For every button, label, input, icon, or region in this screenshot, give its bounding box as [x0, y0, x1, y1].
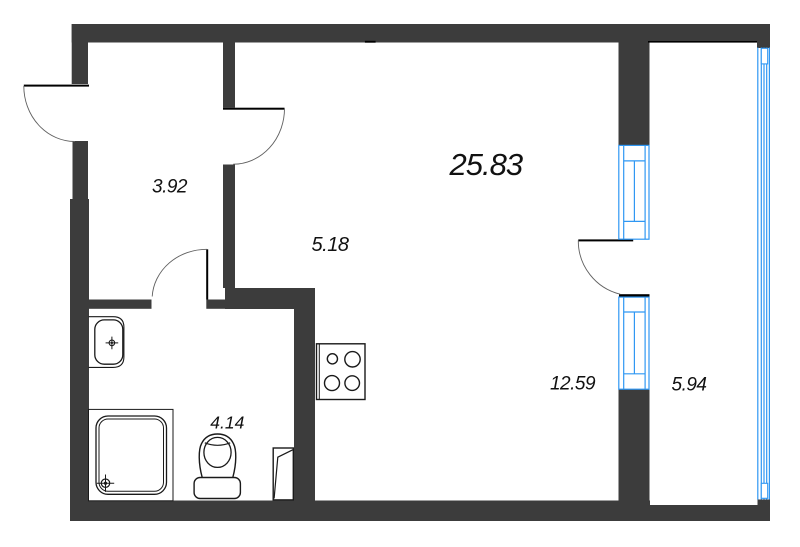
svg-text:25.83: 25.83 [449, 147, 523, 182]
svg-text:3.92: 3.92 [152, 177, 188, 198]
svg-text:12.59: 12.59 [550, 374, 596, 395]
svg-text:5.94: 5.94 [672, 375, 707, 396]
svg-text:4.14: 4.14 [210, 413, 244, 433]
svg-text:5.18: 5.18 [312, 234, 349, 256]
